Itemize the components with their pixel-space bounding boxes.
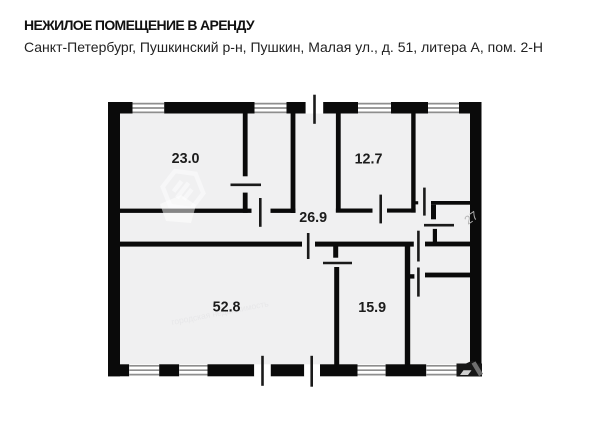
svg-text:52.8: 52.8 <box>213 299 241 315</box>
svg-text:23.0: 23.0 <box>172 151 200 167</box>
svg-text:26.9: 26.9 <box>299 210 327 226</box>
svg-text:12.7: 12.7 <box>355 151 383 167</box>
svg-text:15.9: 15.9 <box>358 300 386 316</box>
